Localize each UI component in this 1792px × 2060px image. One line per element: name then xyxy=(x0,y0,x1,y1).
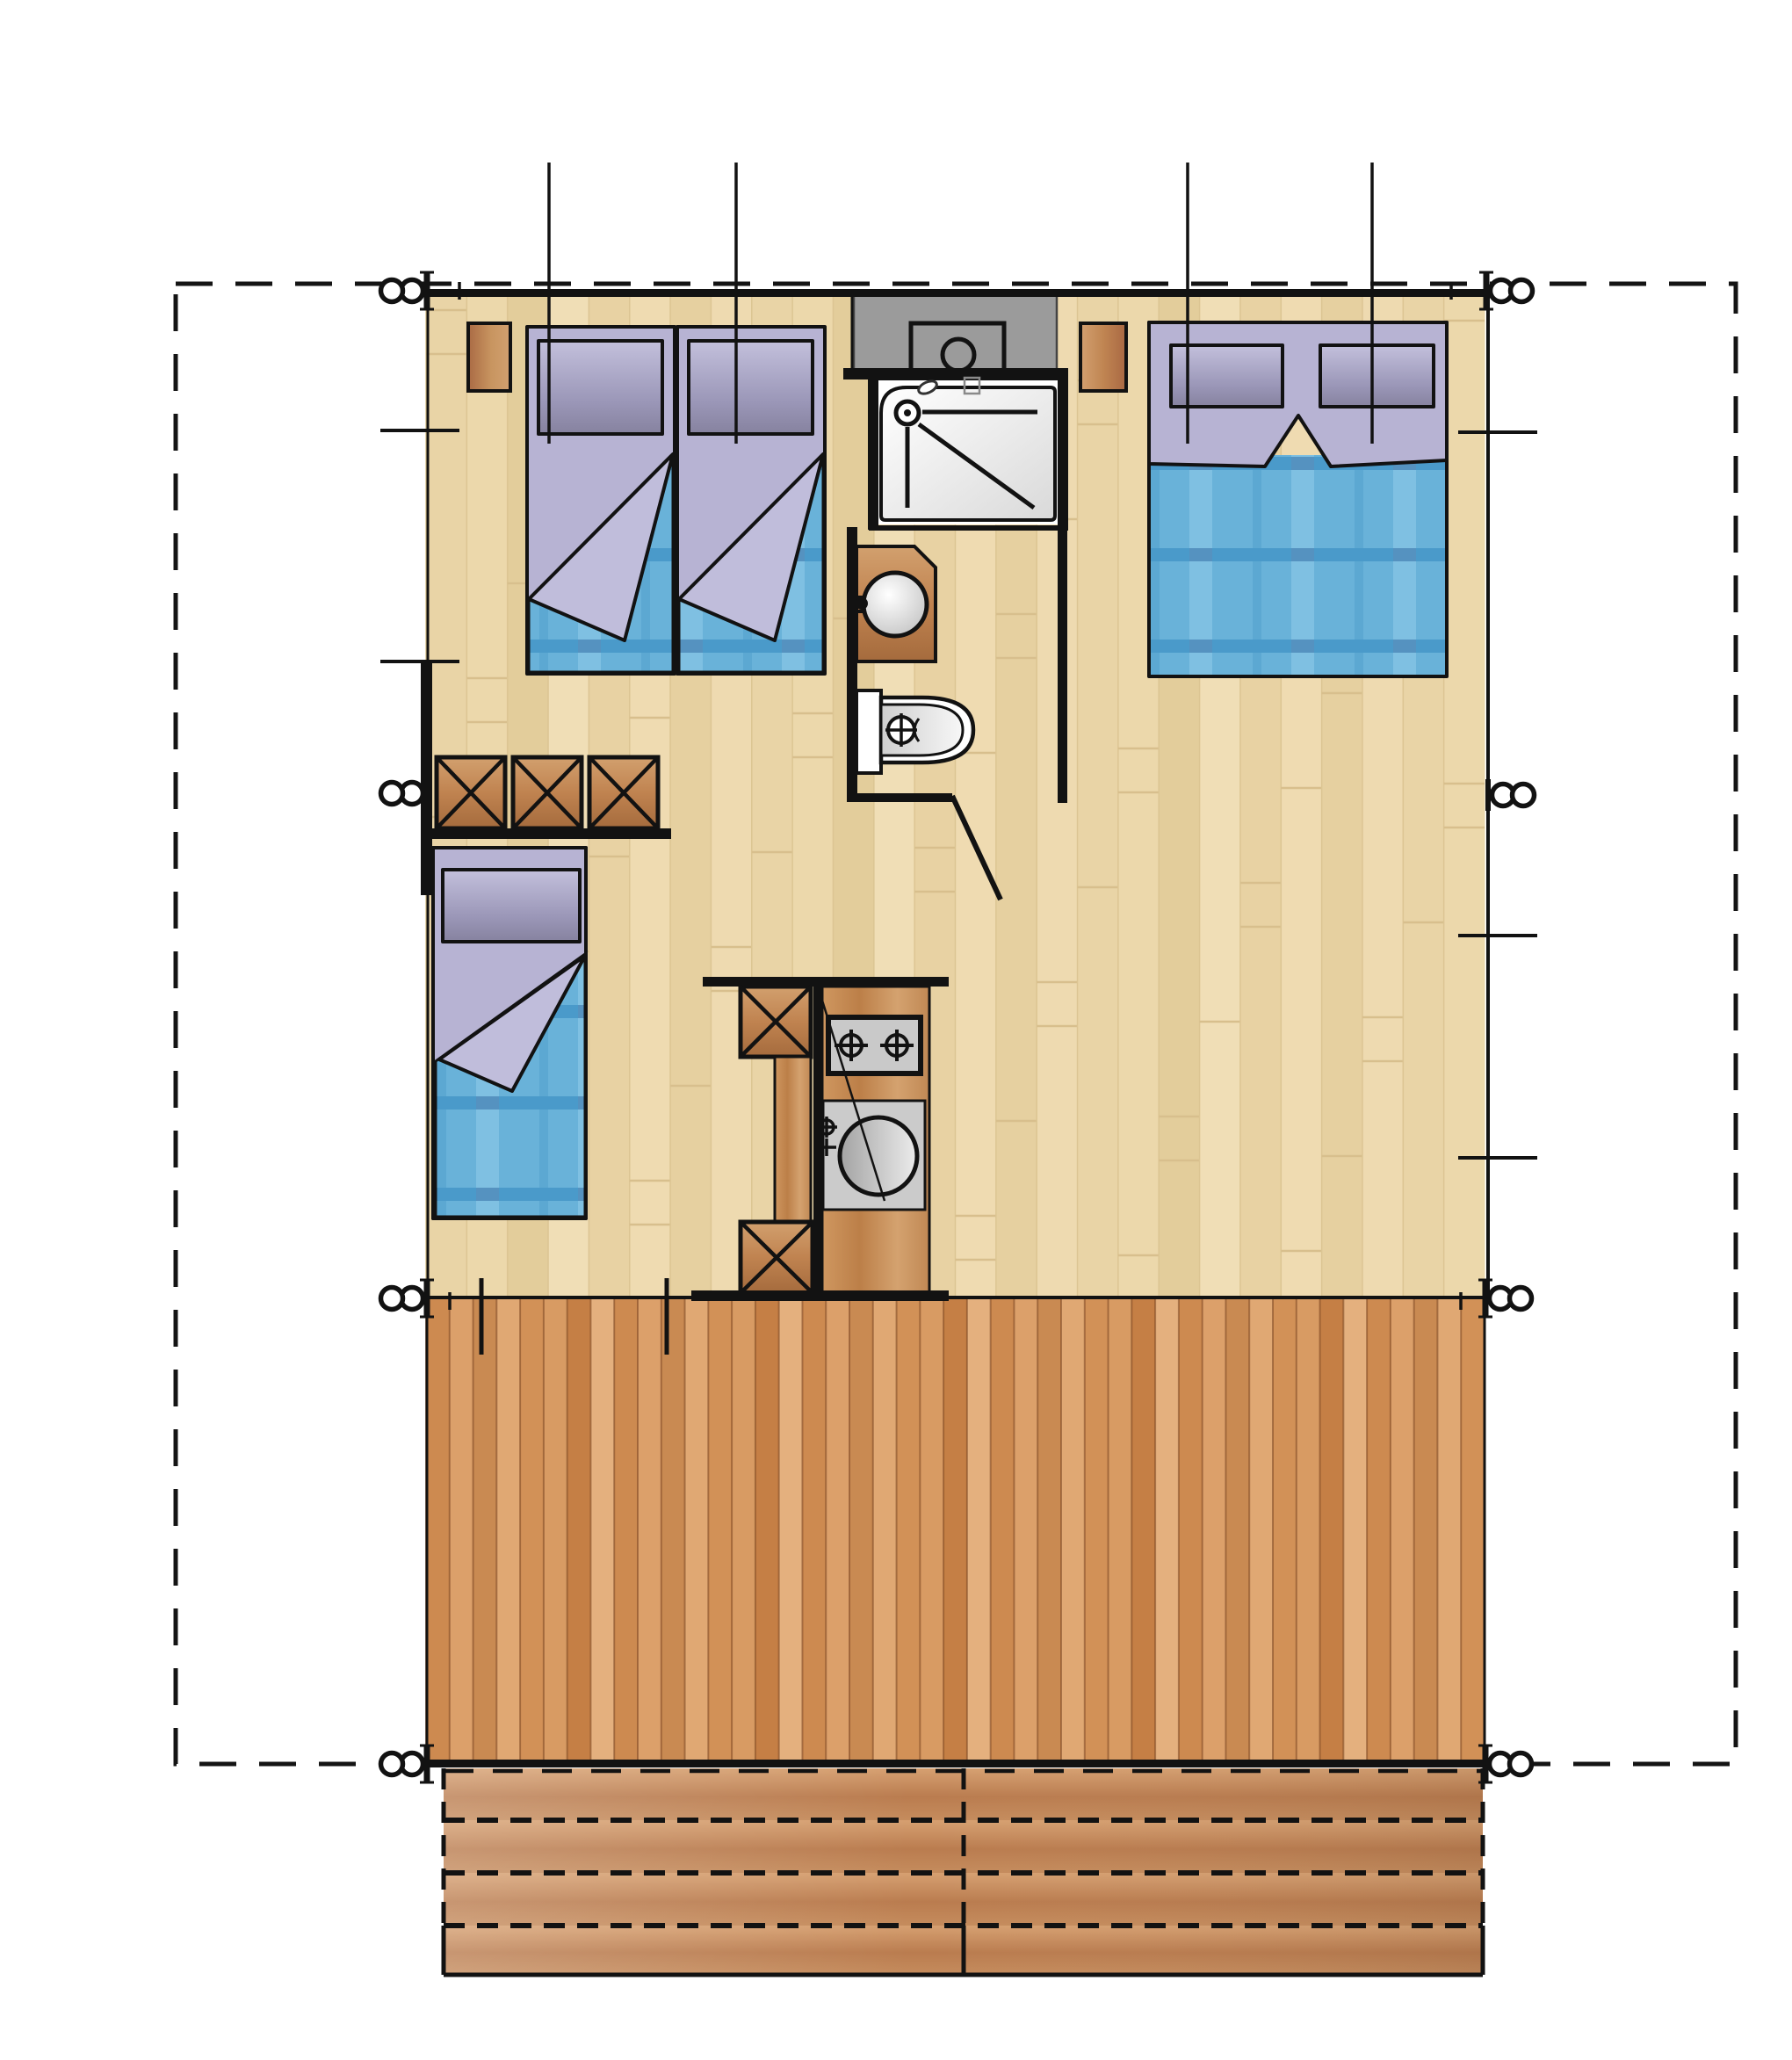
entry-steps xyxy=(444,1768,1483,1975)
floor-plank xyxy=(1078,293,1119,1297)
tie-down-anchor-icon xyxy=(379,275,427,307)
deck-plank xyxy=(567,1297,591,1764)
deck-plank xyxy=(1367,1297,1391,1764)
crate xyxy=(589,757,658,828)
pillow xyxy=(538,341,662,434)
nightstand-right xyxy=(1080,323,1126,391)
deck-plank xyxy=(520,1297,544,1764)
storage-crates xyxy=(432,757,671,839)
deck-plank xyxy=(1273,1297,1297,1764)
pillow xyxy=(1320,345,1434,407)
tie-down-anchor-icon xyxy=(1485,1283,1533,1314)
deck-plank xyxy=(685,1297,709,1764)
crate-shelf-wall xyxy=(432,828,671,839)
water-heater xyxy=(854,294,1057,373)
crate xyxy=(437,757,505,828)
tie-down-anchor-icon xyxy=(379,777,427,809)
pillow xyxy=(689,341,813,434)
floor-plan-drawing xyxy=(0,0,1792,2060)
deck-plank xyxy=(1109,1297,1132,1764)
deck-plank xyxy=(614,1297,638,1764)
deck-plank xyxy=(1320,1297,1344,1764)
deck-plank xyxy=(1414,1297,1438,1764)
kitchen-cabinet xyxy=(741,1222,813,1293)
deck-plank xyxy=(496,1297,520,1764)
floor-plank xyxy=(1444,293,1485,1297)
washbasin xyxy=(863,573,927,636)
deck-plank xyxy=(426,1297,450,1764)
deck-plank xyxy=(1085,1297,1109,1764)
deck-plank xyxy=(1343,1297,1367,1764)
deck-plank xyxy=(1061,1297,1085,1764)
deck-plank xyxy=(897,1297,921,1764)
crate xyxy=(513,757,582,828)
deck-plank xyxy=(1203,1297,1226,1764)
nightstand-left xyxy=(468,323,510,391)
deck-plank xyxy=(590,1297,614,1764)
deck-plank xyxy=(920,1297,943,1764)
deck-plank xyxy=(1155,1297,1179,1764)
tie-down-anchor-icon xyxy=(1485,1748,1533,1780)
twin-bed-2 xyxy=(677,327,825,674)
deck-plank xyxy=(473,1297,497,1764)
deck-plank xyxy=(1297,1297,1320,1764)
double-bed xyxy=(1149,322,1447,676)
tie-down-anchor-icon xyxy=(379,1748,427,1780)
deck-plank xyxy=(873,1297,897,1764)
bathroom-wall-right xyxy=(1058,373,1067,803)
deck-edge-bottom xyxy=(423,1760,1486,1767)
deck-plank xyxy=(849,1297,873,1764)
deck-plank xyxy=(708,1297,732,1764)
tie-down-anchor-icon xyxy=(379,1283,427,1314)
deck-plank xyxy=(1131,1297,1155,1764)
single-bed xyxy=(433,848,586,1218)
deck-plank xyxy=(661,1297,685,1764)
pillow xyxy=(443,870,580,942)
deck-plank xyxy=(450,1297,473,1764)
tent-wall-top xyxy=(423,289,1487,297)
deck-plank xyxy=(967,1297,991,1764)
kitchen-cabinet xyxy=(741,987,811,1057)
deck-plank xyxy=(1437,1297,1461,1764)
deck-plank xyxy=(779,1297,803,1764)
kitchen-counter-strip xyxy=(775,1057,811,1222)
deck-plank xyxy=(1014,1297,1037,1764)
deck-plank xyxy=(1037,1297,1061,1764)
deck xyxy=(426,1297,1485,1764)
tie-down-anchor-icon xyxy=(1486,275,1534,307)
tie-down-anchor-icon xyxy=(1488,779,1535,811)
deck-plank xyxy=(943,1297,967,1764)
bathroom-wall-shower xyxy=(868,379,878,530)
deck-plank xyxy=(544,1297,567,1764)
deck-plank xyxy=(1179,1297,1203,1764)
deck-plank xyxy=(755,1297,779,1764)
bathroom-wall-south xyxy=(847,793,952,802)
deck-plank xyxy=(732,1297,755,1764)
deck-plank xyxy=(1461,1297,1485,1764)
deck-plank xyxy=(1249,1297,1273,1764)
deck-plank xyxy=(1391,1297,1414,1764)
deck-plank xyxy=(1225,1297,1249,1764)
deck-plank xyxy=(638,1297,661,1764)
deck-plank xyxy=(826,1297,849,1764)
deck-plank xyxy=(991,1297,1015,1764)
deck-planks xyxy=(426,1297,1485,1764)
shower-drain-dot xyxy=(904,409,911,416)
bed-blanket xyxy=(1149,455,1447,676)
deck-plank xyxy=(802,1297,826,1764)
toilet-tank xyxy=(856,690,881,773)
